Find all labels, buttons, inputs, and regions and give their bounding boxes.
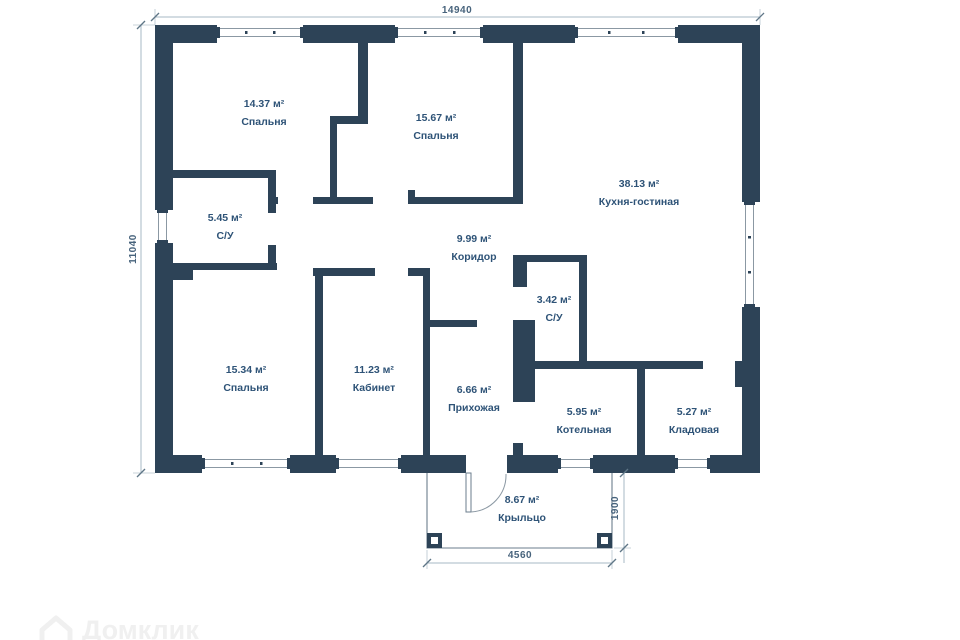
room-label-bathroom-1: 5.45 м² С/У — [208, 212, 243, 242]
svg-text:38.13 м²: 38.13 м² — [619, 178, 660, 190]
window-bedroom-3 — [202, 455, 290, 473]
floor-plan: 14940 11040 4560 1900 14.37 м² Спальня 1… — [0, 0, 960, 640]
svg-text:11.23 м²: 11.23 м² — [354, 364, 394, 376]
room-label-porch: 8.67 м² Крыльцо — [498, 494, 546, 524]
svg-text:14.37 м²: 14.37 м² — [244, 98, 285, 110]
svg-text:Кладовая: Кладовая — [669, 424, 719, 436]
svg-text:Прихожая: Прихожая — [448, 402, 500, 414]
dimension-top: 14940 — [442, 5, 472, 16]
window-kitchen-top — [575, 25, 678, 43]
house-icon — [42, 618, 70, 640]
porch-column — [427, 533, 442, 548]
room-label-hallway: 6.66 м² Прихожая — [448, 384, 500, 414]
window-bathroom-1 — [155, 210, 173, 243]
floor-plan-page: 14940 11040 4560 1900 14.37 м² Спальня 1… — [0, 0, 960, 640]
svg-text:С/У: С/У — [216, 230, 234, 242]
svg-text:15.67 м²: 15.67 м² — [416, 112, 457, 124]
window-storage — [675, 455, 710, 473]
svg-text:5.45 м²: 5.45 м² — [208, 212, 243, 224]
window-bedroom-1 — [217, 25, 303, 43]
room-label-storage: 5.27 м² Кладовая — [669, 406, 719, 436]
svg-text:8.67 м²: 8.67 м² — [505, 494, 540, 506]
dimension-porch-width: 4560 — [508, 550, 532, 561]
window-bedroom-2 — [395, 25, 483, 43]
porch-outline — [427, 473, 612, 548]
room-label-bedroom-3: 15.34 м² Спальня — [223, 364, 268, 394]
svg-text:Котельная: Котельная — [557, 424, 612, 436]
porch-column — [597, 533, 612, 548]
svg-text:С/У: С/У — [545, 312, 563, 324]
window-office — [336, 455, 401, 473]
svg-text:Крыльцо: Крыльцо — [498, 512, 546, 524]
svg-text:Коридор: Коридор — [451, 251, 496, 263]
svg-text:9.99 м²: 9.99 м² — [457, 233, 492, 245]
svg-text:3.42 м²: 3.42 м² — [537, 294, 572, 306]
dimension-lines: 14940 11040 4560 1900 — [128, 5, 764, 569]
svg-text:Кабинет: Кабинет — [353, 382, 396, 394]
room-label-bedroom-2: 15.67 м² Спальня — [413, 112, 458, 142]
room-label-office: 11.23 м² Кабинет — [353, 364, 396, 394]
window-kitchen-right — [742, 202, 760, 307]
room-label-corridor: 9.99 м² Коридор — [451, 233, 496, 263]
svg-text:5.27 м²: 5.27 м² — [677, 406, 712, 418]
watermark: Домклик — [42, 615, 199, 640]
door-swing-arc — [471, 474, 506, 512]
entrance-door — [466, 455, 507, 512]
svg-text:Спальня: Спальня — [241, 116, 286, 128]
svg-text:Спальня: Спальня — [413, 130, 458, 142]
svg-text:Спальня: Спальня — [223, 382, 268, 394]
dimension-porch-depth: 1900 — [610, 496, 621, 520]
svg-text:15.34 м²: 15.34 м² — [226, 364, 267, 376]
room-label-kitchen-living: 38.13 м² Кухня-гостиная — [599, 178, 679, 208]
room-label-bathroom-2: 3.42 м² С/У — [537, 294, 572, 324]
dimension-left: 11040 — [128, 234, 139, 264]
svg-text:Кухня-гостиная: Кухня-гостиная — [599, 196, 679, 208]
room-label-boiler-room: 5.95 м² Котельная — [557, 406, 612, 436]
svg-text:6.66 м²: 6.66 м² — [457, 384, 492, 396]
room-label-bedroom-1: 14.37 м² Спальня — [241, 98, 286, 128]
svg-text:5.95 м²: 5.95 м² — [567, 406, 602, 418]
window-boiler-room — [558, 455, 593, 473]
watermark-text: Домклик — [82, 615, 199, 640]
